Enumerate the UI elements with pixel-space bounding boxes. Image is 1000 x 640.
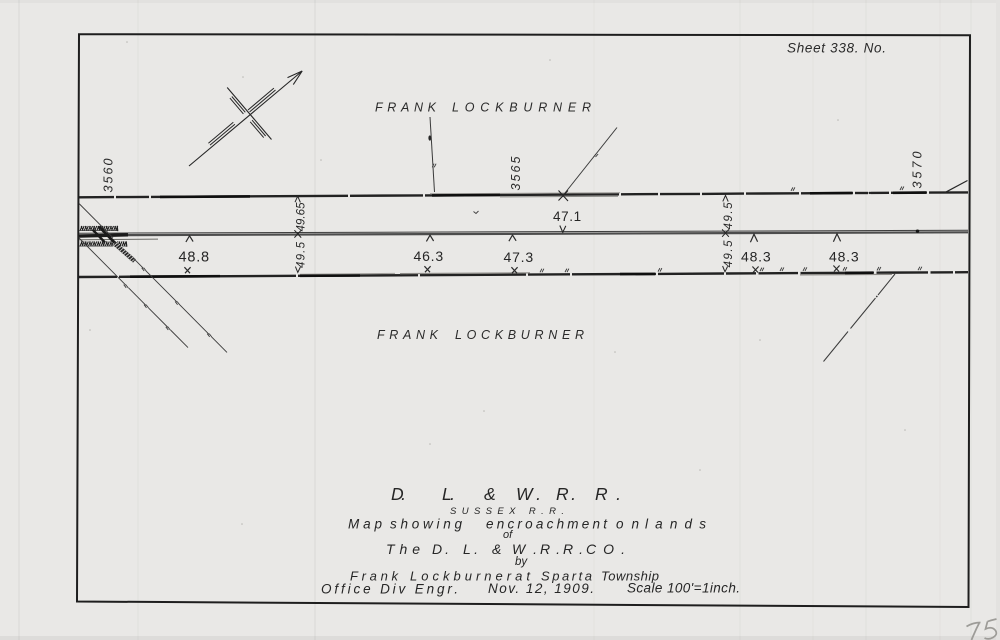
- svg-text:Sheet 338. No.: Sheet 338. No.: [787, 41, 886, 56]
- svg-text:by: by: [515, 556, 528, 568]
- svg-text:of: of: [503, 529, 513, 541]
- svg-text:49.65: 49.65: [296, 202, 308, 232]
- svg-text:Nov. 12, 1909.: Nov. 12, 1909.: [488, 581, 594, 596]
- svg-text:47.3: 47.3: [504, 249, 534, 265]
- svg-text:49.5: 49.5: [296, 241, 308, 268]
- svg-text:48.8: 48.8: [179, 250, 210, 266]
- svg-text:Scale 100'=1inch.: Scale 100'=1inch.: [627, 581, 740, 596]
- svg-text:47.1: 47.1: [553, 209, 582, 224]
- svg-text:49.5: 49.5: [723, 202, 735, 230]
- svg-text:FRANKLOCKBURNER: FRANKLOCKBURNER: [375, 101, 592, 115]
- svg-text:Office Div Engr.: Office Div Engr.: [321, 582, 458, 597]
- svg-text:48.3: 48.3: [741, 249, 771, 265]
- svg-text:FRANKLOCKBURNER: FRANKLOCKBURNER: [377, 328, 585, 342]
- svg-text:46.3: 46.3: [414, 248, 444, 264]
- svg-text:48.3: 48.3: [829, 249, 859, 265]
- svg-text:49.5: 49.5: [723, 240, 735, 268]
